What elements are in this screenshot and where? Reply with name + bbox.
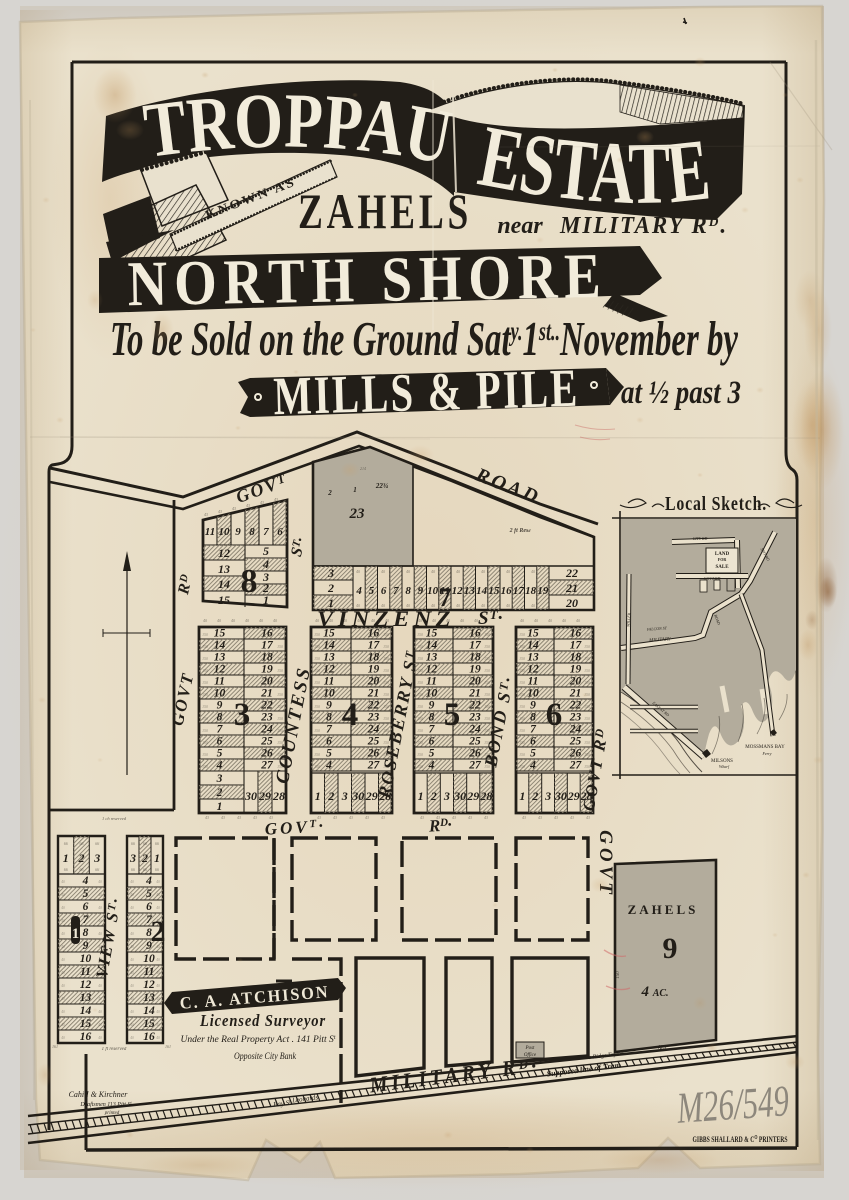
svg-text:near: near (497, 213, 543, 239)
svg-text:40: 40 (156, 958, 160, 962)
svg-text:40: 40 (156, 1023, 160, 1027)
svg-text:12: 12 (218, 546, 230, 560)
svg-text:1: 1 (353, 486, 357, 494)
svg-text:11: 11 (426, 676, 437, 688)
svg-text:43: 43 (260, 500, 264, 505)
svg-text:CITY RD: CITY RD (693, 536, 708, 541)
svg-text:3: 3 (216, 773, 223, 785)
svg-text:6: 6 (530, 736, 536, 748)
svg-text:150: 150 (314, 729, 320, 733)
svg-text:13: 13 (527, 652, 539, 664)
svg-text:22: 22 (565, 566, 578, 580)
svg-text:14: 14 (143, 1005, 155, 1017)
svg-text:1 ch reserved: 1 ch reserved (102, 816, 127, 821)
svg-text:150: 150 (277, 657, 283, 661)
svg-text:40: 40 (61, 880, 65, 884)
svg-text:2: 2 (430, 789, 437, 803)
svg-text:150: 150 (519, 645, 525, 649)
svg-text:66: 66 (155, 867, 159, 872)
svg-text:ESTATE: ESTATE (472, 108, 714, 223)
svg-text:Ferry: Ferry (761, 751, 771, 756)
svg-text:SALE: SALE (715, 565, 729, 570)
svg-text:40: 40 (259, 618, 263, 623)
svg-text:To be Sold on the Ground Saty.: To be Sold on the Ground Saty.1st..Novem… (110, 311, 738, 366)
svg-text:19: 19 (570, 664, 582, 676)
svg-text:22¾: 22¾ (375, 482, 388, 490)
svg-text:161: 161 (52, 1044, 58, 1049)
svg-text:13: 13 (464, 585, 476, 597)
svg-text:40: 40 (329, 618, 333, 623)
svg-text:43: 43 (218, 509, 222, 514)
svg-text:5: 5 (429, 748, 435, 760)
svg-text:8: 8 (249, 526, 255, 538)
svg-text:GOVT RD: GOVT RD (704, 576, 721, 581)
svg-text:16: 16 (80, 1031, 92, 1043)
svg-text:1: 1 (217, 801, 223, 813)
svg-text:150: 150 (383, 657, 389, 661)
svg-text:15: 15 (80, 1018, 92, 1030)
svg-text:3: 3 (443, 789, 450, 803)
svg-text:9: 9 (326, 700, 332, 712)
svg-text:8: 8 (429, 712, 435, 724)
svg-text:40: 40 (130, 1023, 134, 1027)
svg-text:8: 8 (241, 563, 258, 600)
svg-text:17: 17 (368, 640, 381, 652)
svg-text:12: 12 (527, 664, 539, 676)
svg-text:150: 150 (417, 633, 423, 637)
svg-text:150: 150 (519, 753, 525, 757)
svg-text:14: 14 (218, 577, 230, 591)
svg-text:10: 10 (219, 526, 231, 538)
svg-text:150: 150 (383, 645, 389, 649)
svg-text:FOR: FOR (718, 557, 727, 562)
svg-text:150: 150 (277, 645, 283, 649)
svg-text:150: 150 (314, 753, 320, 757)
svg-text:30: 30 (554, 789, 567, 803)
svg-text:40: 40 (156, 971, 160, 975)
svg-text:43: 43 (538, 815, 542, 820)
svg-text:43: 43 (246, 503, 250, 508)
svg-text:40: 40 (231, 618, 235, 623)
svg-text:150: 150 (484, 669, 490, 673)
svg-text:9: 9 (235, 526, 241, 538)
svg-text:3: 3 (544, 789, 551, 803)
svg-text:17: 17 (469, 640, 482, 652)
svg-text:15: 15 (214, 628, 226, 640)
svg-text:25: 25 (569, 736, 582, 748)
svg-text:30: 30 (244, 789, 257, 803)
svg-text:8: 8 (405, 585, 411, 597)
svg-text:40: 40 (315, 618, 319, 623)
svg-text:8: 8 (83, 927, 89, 939)
svg-text:10: 10 (426, 688, 438, 700)
svg-text:40: 40 (431, 569, 435, 574)
svg-text:8: 8 (530, 712, 536, 724)
svg-text:14: 14 (527, 640, 539, 652)
svg-text:40: 40 (418, 618, 422, 623)
svg-text:26: 26 (260, 748, 273, 760)
svg-text:4: 4 (529, 760, 536, 772)
svg-text:40: 40 (406, 569, 410, 574)
svg-text:43: 43 (420, 815, 424, 820)
svg-text:1: 1 (72, 926, 80, 942)
svg-text:150: 150 (383, 633, 389, 637)
svg-text:40: 40 (385, 618, 389, 623)
svg-text:2: 2 (327, 581, 334, 595)
svg-text:ZAHELS: ZAHELS (298, 183, 472, 239)
svg-text:150: 150 (383, 681, 389, 685)
svg-text:printed: printed (104, 1111, 120, 1116)
svg-text:16: 16 (501, 585, 513, 597)
svg-text:1: 1 (154, 851, 160, 865)
svg-text:43: 43 (522, 815, 526, 820)
svg-text:150: 150 (202, 729, 208, 733)
svg-text:66: 66 (143, 841, 147, 846)
svg-text:1 ft reserved: 1 ft reserved (102, 1047, 127, 1052)
svg-text:40: 40 (130, 1010, 134, 1014)
svg-text:21: 21 (260, 688, 273, 700)
svg-text:40: 40 (130, 880, 134, 884)
svg-text:43: 43 (365, 815, 369, 820)
svg-text:150: 150 (519, 681, 525, 685)
svg-text:22: 22 (569, 700, 582, 712)
svg-text:3: 3 (93, 851, 100, 865)
svg-text:40: 40 (98, 997, 102, 1001)
svg-text:12: 12 (323, 664, 335, 676)
svg-text:40: 40 (156, 880, 160, 884)
svg-text:14: 14 (426, 640, 438, 652)
svg-text:23: 23 (260, 712, 273, 724)
svg-text:2: 2 (216, 787, 223, 799)
svg-text:14: 14 (80, 1005, 92, 1017)
svg-text:40: 40 (432, 618, 436, 623)
svg-text:40: 40 (156, 906, 160, 910)
svg-text:18: 18 (261, 652, 273, 664)
svg-text:10: 10 (80, 953, 92, 965)
svg-text:2: 2 (141, 851, 148, 865)
svg-text:7: 7 (393, 585, 399, 597)
svg-text:17: 17 (570, 640, 583, 652)
svg-text:43: 43 (586, 815, 590, 820)
svg-text:40: 40 (156, 997, 160, 1001)
svg-text:150: 150 (519, 657, 525, 661)
svg-text:43: 43 (237, 815, 241, 820)
svg-text:16: 16 (261, 628, 273, 640)
svg-text:at ½ past 3: at ½ past 3 (621, 375, 741, 411)
svg-text:40: 40 (61, 893, 65, 897)
svg-text:66: 66 (155, 841, 159, 846)
svg-text:150: 150 (519, 741, 525, 745)
svg-text:7: 7 (263, 526, 269, 538)
svg-text:23: 23 (468, 712, 481, 724)
svg-text:23: 23 (367, 712, 380, 724)
svg-text:150: 150 (519, 729, 525, 733)
svg-text:150: 150 (519, 633, 525, 637)
svg-text:12: 12 (426, 664, 438, 676)
svg-text:214: 214 (360, 466, 366, 471)
svg-text:13: 13 (143, 992, 155, 1004)
svg-text:4: 4 (325, 760, 332, 772)
svg-text:24: 24 (367, 724, 380, 736)
svg-text:66: 66 (95, 841, 99, 846)
svg-text:40: 40 (98, 1036, 102, 1040)
svg-text:27: 27 (569, 760, 583, 772)
svg-text:14: 14 (214, 640, 226, 652)
svg-text:15: 15 (218, 593, 230, 607)
svg-text:40: 40 (61, 997, 65, 1001)
svg-text:11: 11 (214, 676, 225, 688)
svg-text:26: 26 (468, 748, 481, 760)
svg-text:6: 6 (146, 901, 152, 913)
svg-text:13: 13 (80, 992, 92, 1004)
svg-text:6: 6 (277, 526, 283, 538)
svg-text:17: 17 (513, 585, 525, 597)
svg-text:40: 40 (576, 618, 580, 623)
svg-text:66: 66 (95, 867, 99, 872)
svg-text:2 ft Resd: 2 ft Resd (509, 528, 532, 534)
svg-text:40: 40 (130, 971, 134, 975)
svg-text:150: 150 (314, 765, 320, 769)
svg-text:40: 40 (130, 932, 134, 936)
svg-text:150: 150 (383, 693, 389, 697)
svg-text:3: 3 (129, 851, 136, 865)
svg-text:66: 66 (131, 841, 135, 846)
svg-text:40: 40 (520, 618, 524, 623)
svg-text:40: 40 (217, 618, 221, 623)
svg-text:17: 17 (261, 640, 274, 652)
svg-text:29: 29 (258, 789, 271, 803)
svg-text:25: 25 (260, 736, 273, 748)
svg-text:2: 2 (327, 789, 334, 803)
svg-text:3: 3 (341, 789, 348, 803)
svg-text:150: 150 (417, 681, 423, 685)
svg-text:150: 150 (202, 741, 208, 745)
svg-text:150: 150 (484, 633, 490, 637)
svg-text:150: 150 (277, 669, 283, 673)
svg-text:43: 43 (554, 815, 558, 820)
svg-text:27: 27 (260, 760, 274, 772)
svg-text:9: 9 (83, 940, 89, 952)
svg-text:12: 12 (452, 585, 464, 597)
svg-text:150: 150 (584, 717, 590, 721)
svg-text:6: 6 (381, 585, 387, 597)
svg-text:40: 40 (130, 893, 134, 897)
svg-text:150: 150 (202, 681, 208, 685)
svg-text:150: 150 (484, 693, 490, 697)
svg-text:150: 150 (417, 705, 423, 709)
svg-text:150: 150 (584, 633, 590, 637)
svg-text:150: 150 (584, 657, 590, 661)
svg-text:150: 150 (314, 645, 320, 649)
svg-text:150: 150 (314, 681, 320, 685)
svg-text:1: 1 (519, 789, 525, 803)
svg-text:8: 8 (217, 712, 223, 724)
svg-text:40: 40 (130, 958, 134, 962)
svg-text:Draftsmen 113 Pitt St: Draftsmen 113 Pitt St (79, 1100, 132, 1108)
svg-text:150: 150 (202, 633, 208, 637)
svg-text:40: 40 (156, 893, 160, 897)
svg-text:40: 40 (456, 603, 460, 608)
svg-text:5: 5 (263, 544, 269, 558)
svg-text:MOSSMANS BAY: MOSSMANS BAY (745, 745, 785, 750)
svg-text:14: 14 (323, 640, 335, 652)
svg-text:1: 1 (63, 851, 69, 865)
svg-text:40: 40 (474, 618, 478, 623)
svg-text:66: 66 (143, 867, 147, 872)
svg-text:66: 66 (80, 867, 84, 872)
svg-text:40: 40 (61, 932, 65, 936)
svg-text:40: 40 (61, 1010, 65, 1014)
svg-text:40: 40 (130, 984, 134, 988)
svg-text:10: 10 (214, 688, 226, 700)
svg-text:43: 43 (452, 815, 456, 820)
svg-text:13: 13 (214, 652, 226, 664)
svg-text:6: 6 (217, 736, 223, 748)
svg-text:40: 40 (481, 569, 485, 574)
svg-text:150: 150 (484, 645, 490, 649)
svg-text:40: 40 (61, 1036, 65, 1040)
svg-text:150: 150 (202, 657, 208, 661)
svg-text:43: 43 (381, 815, 385, 820)
svg-text:40: 40 (456, 569, 460, 574)
svg-text:28: 28 (272, 789, 285, 803)
svg-text:24: 24 (569, 724, 582, 736)
svg-text:40: 40 (98, 1023, 102, 1027)
svg-text:150: 150 (202, 705, 208, 709)
svg-text:40: 40 (506, 569, 510, 574)
svg-text:15: 15 (143, 1018, 155, 1030)
svg-text:66: 66 (80, 841, 84, 846)
svg-text:Licensed Surveyor: Licensed Surveyor (199, 1011, 326, 1030)
svg-text:ZAHELS: ZAHELS (628, 902, 699, 917)
svg-text:MILITARY RD.: MILITARY RD. (559, 213, 728, 239)
svg-text:26: 26 (367, 748, 380, 760)
svg-text:2: 2 (151, 915, 166, 948)
svg-text:9: 9 (663, 932, 678, 965)
svg-text:Opposite City Bank: Opposite City Bank (234, 1052, 297, 1062)
svg-text:150: 150 (383, 705, 389, 709)
svg-text:24: 24 (468, 724, 481, 736)
svg-text:9: 9 (217, 700, 223, 712)
svg-text:40: 40 (61, 919, 65, 923)
svg-text:16: 16 (143, 1031, 155, 1043)
svg-text:9: 9 (429, 700, 435, 712)
svg-text:19: 19 (469, 664, 481, 676)
svg-text:150: 150 (519, 765, 525, 769)
svg-text:13: 13 (218, 562, 230, 576)
svg-text:18: 18 (570, 652, 582, 664)
svg-text:40: 40 (98, 880, 102, 884)
svg-text:40: 40 (156, 1010, 160, 1014)
svg-text:11: 11 (205, 526, 215, 538)
svg-text:6: 6 (326, 736, 332, 748)
svg-text:40: 40 (245, 618, 249, 623)
svg-text:28: 28 (479, 789, 492, 803)
svg-text:21: 21 (367, 688, 380, 700)
svg-text:40: 40 (506, 603, 510, 608)
svg-text:4: 4 (262, 557, 269, 571)
svg-text:23: 23 (349, 506, 366, 522)
svg-text:150: 150 (417, 693, 423, 697)
svg-text:18: 18 (368, 652, 380, 664)
svg-text:43: 43 (570, 815, 574, 820)
svg-text:40: 40 (460, 618, 464, 623)
svg-text:40: 40 (130, 997, 134, 1001)
svg-text:15: 15 (527, 628, 539, 640)
svg-text:150: 150 (314, 717, 320, 721)
svg-text:40: 40 (156, 1036, 160, 1040)
svg-text:19: 19 (261, 664, 273, 676)
svg-text:20: 20 (367, 676, 380, 688)
svg-text:20: 20 (565, 596, 578, 610)
svg-text:40: 40 (61, 984, 65, 988)
svg-text:21: 21 (565, 581, 578, 595)
svg-text:150: 150 (584, 669, 590, 673)
svg-text:40: 40 (203, 618, 207, 623)
svg-text:150: 150 (519, 717, 525, 721)
svg-text:40: 40 (446, 618, 450, 623)
svg-text:150: 150 (383, 669, 389, 673)
svg-text:16: 16 (469, 628, 481, 640)
svg-text:10: 10 (427, 585, 439, 597)
svg-text:150: 150 (417, 717, 423, 721)
svg-text:12: 12 (80, 979, 92, 991)
svg-text:11: 11 (80, 966, 91, 978)
svg-text:40: 40 (371, 618, 375, 623)
svg-text:40: 40 (273, 618, 277, 623)
svg-text:20: 20 (468, 676, 481, 688)
svg-text:43: 43 (274, 497, 278, 502)
svg-text:13: 13 (323, 652, 335, 664)
svg-text:1: 1 (315, 789, 321, 803)
svg-text:12: 12 (214, 664, 226, 676)
svg-text:150: 150 (417, 765, 423, 769)
svg-text:22: 22 (468, 700, 481, 712)
svg-text:40: 40 (61, 906, 65, 910)
svg-text:150: 150 (484, 657, 490, 661)
svg-text:161: 161 (165, 1044, 171, 1049)
svg-text:14: 14 (476, 585, 488, 597)
svg-text:150: 150 (584, 681, 590, 685)
svg-text:40: 40 (130, 906, 134, 910)
svg-text:43: 43 (468, 815, 472, 820)
svg-text:150: 150 (314, 633, 320, 637)
svg-text:40: 40 (98, 906, 102, 910)
svg-text:5: 5 (530, 748, 536, 760)
svg-text:150: 150 (417, 645, 423, 649)
svg-text:13: 13 (426, 652, 438, 664)
svg-text:18: 18 (469, 652, 481, 664)
svg-text:22: 22 (367, 700, 380, 712)
svg-text:22: 22 (260, 700, 273, 712)
svg-text:21: 21 (468, 688, 481, 700)
svg-text:12: 12 (143, 979, 155, 991)
svg-text:43: 43 (484, 815, 488, 820)
svg-text:11: 11 (324, 676, 335, 688)
svg-text:4: 4 (428, 760, 435, 772)
svg-text:43: 43 (349, 815, 353, 820)
svg-text:40: 40 (98, 984, 102, 988)
svg-text:GIBBS SHALLARD & CO PRINTERS: GIBBS SHALLARD & CO PRINTERS (693, 1134, 788, 1144)
svg-text:6: 6 (429, 736, 435, 748)
svg-text:5: 5 (444, 697, 461, 733)
svg-text:9: 9 (530, 700, 536, 712)
svg-text:40: 40 (61, 945, 65, 949)
svg-text:4: 4 (82, 875, 89, 887)
svg-text:40: 40 (356, 569, 360, 574)
svg-text:3: 3 (327, 566, 334, 580)
svg-text:150: 150 (484, 681, 490, 685)
